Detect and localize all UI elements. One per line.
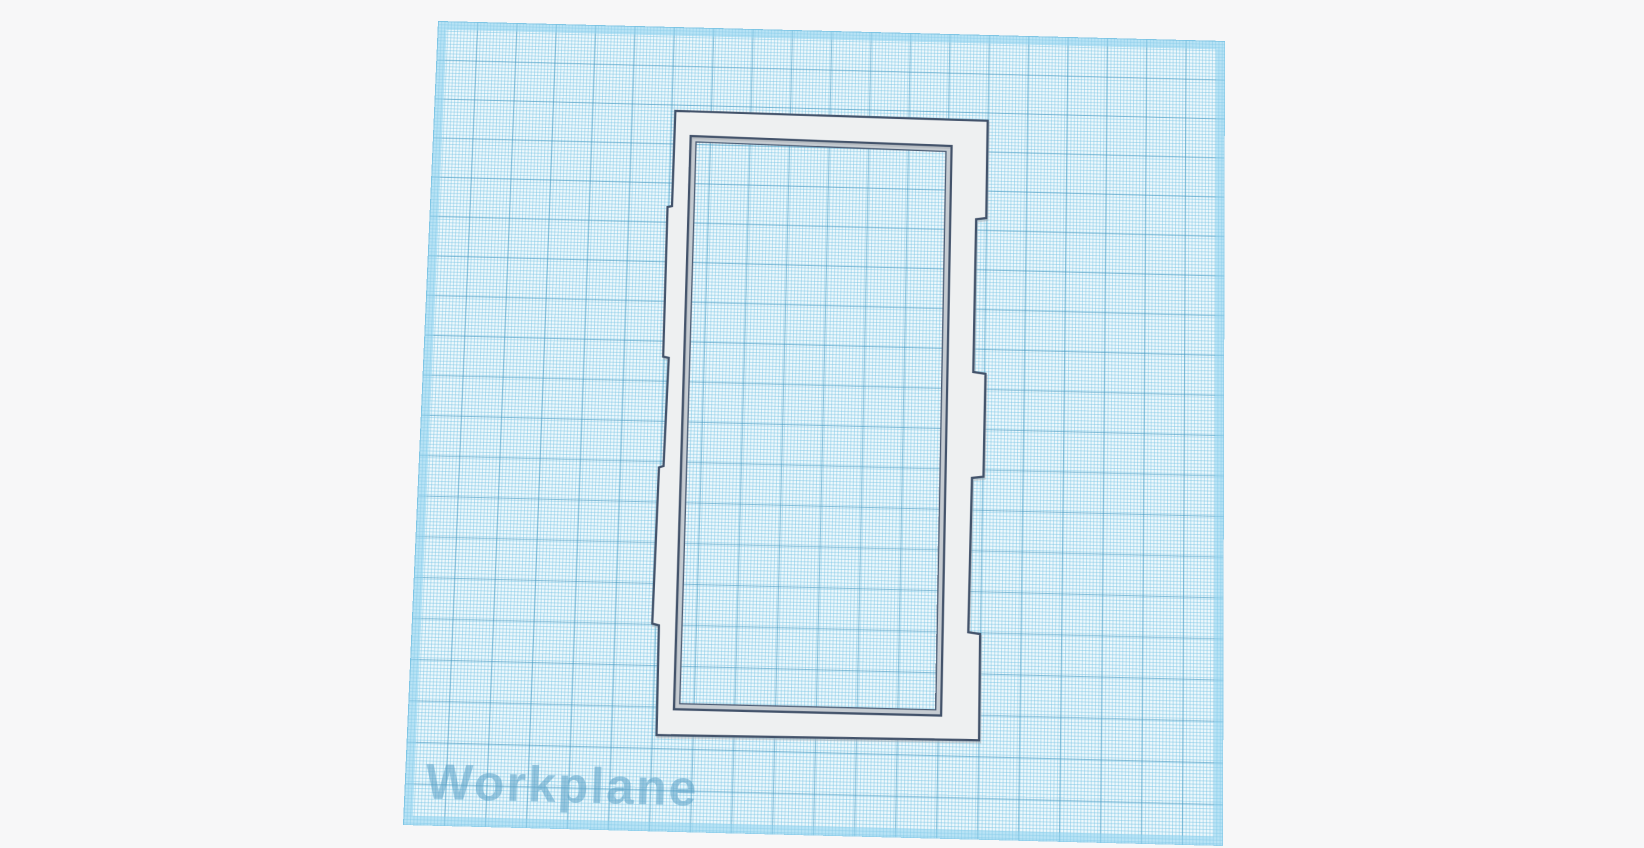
frame-inner-wall-edge bbox=[679, 142, 946, 710]
workplane[interactable]: Workplane bbox=[403, 21, 1225, 846]
frame-inner-wall bbox=[676, 139, 949, 713]
frame-model[interactable] bbox=[403, 21, 1225, 846]
3d-viewport[interactable]: Workplane bbox=[0, 0, 1644, 848]
